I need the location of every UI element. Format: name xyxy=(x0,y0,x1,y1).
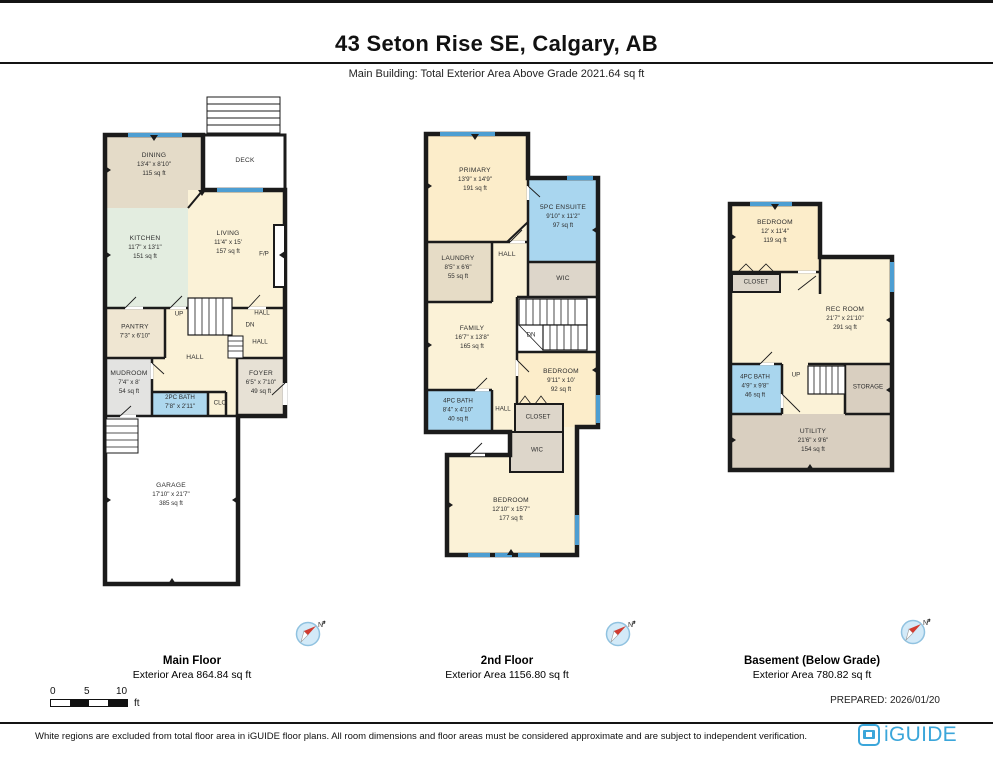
caption-main-floor: Main Floor Exterior Area 864.84 sq ft xyxy=(82,655,302,681)
room-label-hall: HALL xyxy=(186,353,204,363)
compass-main-floor: N xyxy=(294,617,328,651)
floor-name: Basement (Below Grade) xyxy=(702,655,922,667)
room-label-4pc-bath: 4PC BATH 4'9" x 9'8" 46 sq ft xyxy=(740,374,770,401)
room-label-pantry: PANTRY 7'3" x 6'10" xyxy=(120,323,151,342)
room-label-bedroom: BEDROOM 12' x 11'4" 119 sq ft xyxy=(757,218,793,246)
room-label-storage: STORAGE xyxy=(853,384,883,393)
floor-area: Exterior Area 1156.80 sq ft xyxy=(397,669,617,681)
room-label-4pc-bath: 4PC BATH 8'4" x 4'10" 40 sq ft xyxy=(443,398,474,425)
room-label-hall-a: HALL xyxy=(254,310,269,319)
room-label-up: UP xyxy=(792,372,801,381)
floor-area: Exterior Area 864.84 sq ft xyxy=(82,669,302,681)
floorplan-sheet: 43 Seton Rise SE, Calgary, AB Main Build… xyxy=(0,0,993,768)
room-label-fp: F/P xyxy=(259,251,269,260)
room-label-laundry: LAUNDRY 8'5" x 6'6" 55 sq ft xyxy=(441,254,474,282)
scale-bar: 0 5 10 ft xyxy=(50,686,200,712)
stairs-up-icon xyxy=(808,366,845,394)
room-label-family: FAMILY 16'7" x 13'8" 165 sq ft xyxy=(455,324,489,352)
scale-bar-segments xyxy=(50,699,128,707)
room-label-closet: CLOSET xyxy=(744,279,769,288)
room-label-bedroom-b: BEDROOM 9'11" x 10' 92 sq ft xyxy=(543,367,579,395)
compass-second-floor: N xyxy=(604,617,638,651)
room-label-ensuite: 5PC ENSUITE 9'10" x 11'2" 97 sq ft xyxy=(540,203,586,231)
scale-tick-0: 0 xyxy=(50,686,56,697)
room-label-foyer: FOYER 6'5" x 7'10" 49 sq ft xyxy=(246,369,277,397)
scale-unit: ft xyxy=(134,698,140,709)
top-border xyxy=(0,0,993,3)
room-label-primary: PRIMARY 13'9" x 14'9" 191 sq ft xyxy=(458,166,492,194)
room-label-dn: DN xyxy=(527,332,536,341)
room-label-dn: DN xyxy=(246,322,255,331)
room-label-hall: HALL xyxy=(498,250,516,260)
stairs-dn-icon xyxy=(228,336,243,358)
room-label-garage: GARAGE 17'10" x 21'7" 385 sq ft xyxy=(152,481,189,509)
room-label-kitchen: KITCHEN 11'7" x 13'1" 151 sq ft xyxy=(128,234,161,262)
room-label-wic-b: WIC xyxy=(531,447,543,456)
compass-basement: N xyxy=(899,615,933,649)
page-subtitle: Main Building: Total Exterior Area Above… xyxy=(0,68,993,80)
page-title: 43 Seton Rise SE, Calgary, AB xyxy=(0,31,993,57)
room-label-bedroom-c: BEDROOM 12'10" x 15'7" 177 sq ft xyxy=(492,496,529,524)
room-label-dining: DINING 13'4" x 8'10" 115 sq ft xyxy=(137,151,171,179)
disclaimer-text: White regions are excluded from total fl… xyxy=(35,731,807,742)
stairs-up-icon xyxy=(188,298,232,335)
room-label-deck: DECK xyxy=(235,156,254,166)
caption-second-floor: 2nd Floor Exterior Area 1156.80 sq ft xyxy=(397,655,617,681)
footer-divider xyxy=(0,722,993,724)
iguide-logo-icon xyxy=(858,724,880,746)
compass-n-label: N xyxy=(628,622,633,629)
room-label-clo: CLO xyxy=(214,400,227,409)
caption-basement: Basement (Below Grade) Exterior Area 780… xyxy=(702,655,922,681)
iguide-logo-text: iGUIDE xyxy=(884,723,957,747)
room-label-hall-b: HALL xyxy=(495,406,510,415)
compass-n-label: N xyxy=(318,622,323,629)
floor-name: 2nd Floor xyxy=(397,655,617,667)
room-label-closet: CLOSET xyxy=(526,414,551,423)
prepared-date: PREPARED: 2026/01/20 xyxy=(830,695,940,706)
title-divider xyxy=(0,62,993,64)
iguide-logo: iGUIDE xyxy=(858,723,957,747)
main-floor-plan: DINING 13'4" x 8'10" 115 sq ft DECK KITC… xyxy=(100,95,295,595)
garage-stairs-icon xyxy=(106,419,138,453)
compass-n-label: N xyxy=(923,620,928,627)
room-label-utility: UTILITY 21'6" x 9'6" 154 sq ft xyxy=(798,427,829,455)
room-label-2pc-bath: 2PC BATH 7'8" x 2'11" xyxy=(165,394,195,412)
second-floor-plan: PRIMARY 13'9" x 14'9" 191 sq ft 5PC ENSU… xyxy=(415,120,610,565)
deck-stairs-icon xyxy=(207,97,280,133)
scale-tick-5: 5 xyxy=(84,686,90,697)
room-label-wic: WIC xyxy=(556,274,570,284)
room-label-living: LIVING 11'4" x 15' 157 sq ft xyxy=(214,229,242,257)
room-label-rec-room: REC ROOM 21'7" x 21'10" 291 sq ft xyxy=(826,305,864,333)
floor-name: Main Floor xyxy=(82,655,302,667)
room-label-up: UP xyxy=(175,311,184,320)
room-label-mudroom: MUDROOM 7'4" x 8' 54 sq ft xyxy=(110,369,147,397)
scale-tick-10: 10 xyxy=(116,686,127,697)
floor-area: Exterior Area 780.82 sq ft xyxy=(702,669,922,681)
basement-plan: BEDROOM 12' x 11'4" 119 sq ft CLOSET REC… xyxy=(720,190,900,485)
room-label-hall-b: HALL xyxy=(252,339,267,348)
